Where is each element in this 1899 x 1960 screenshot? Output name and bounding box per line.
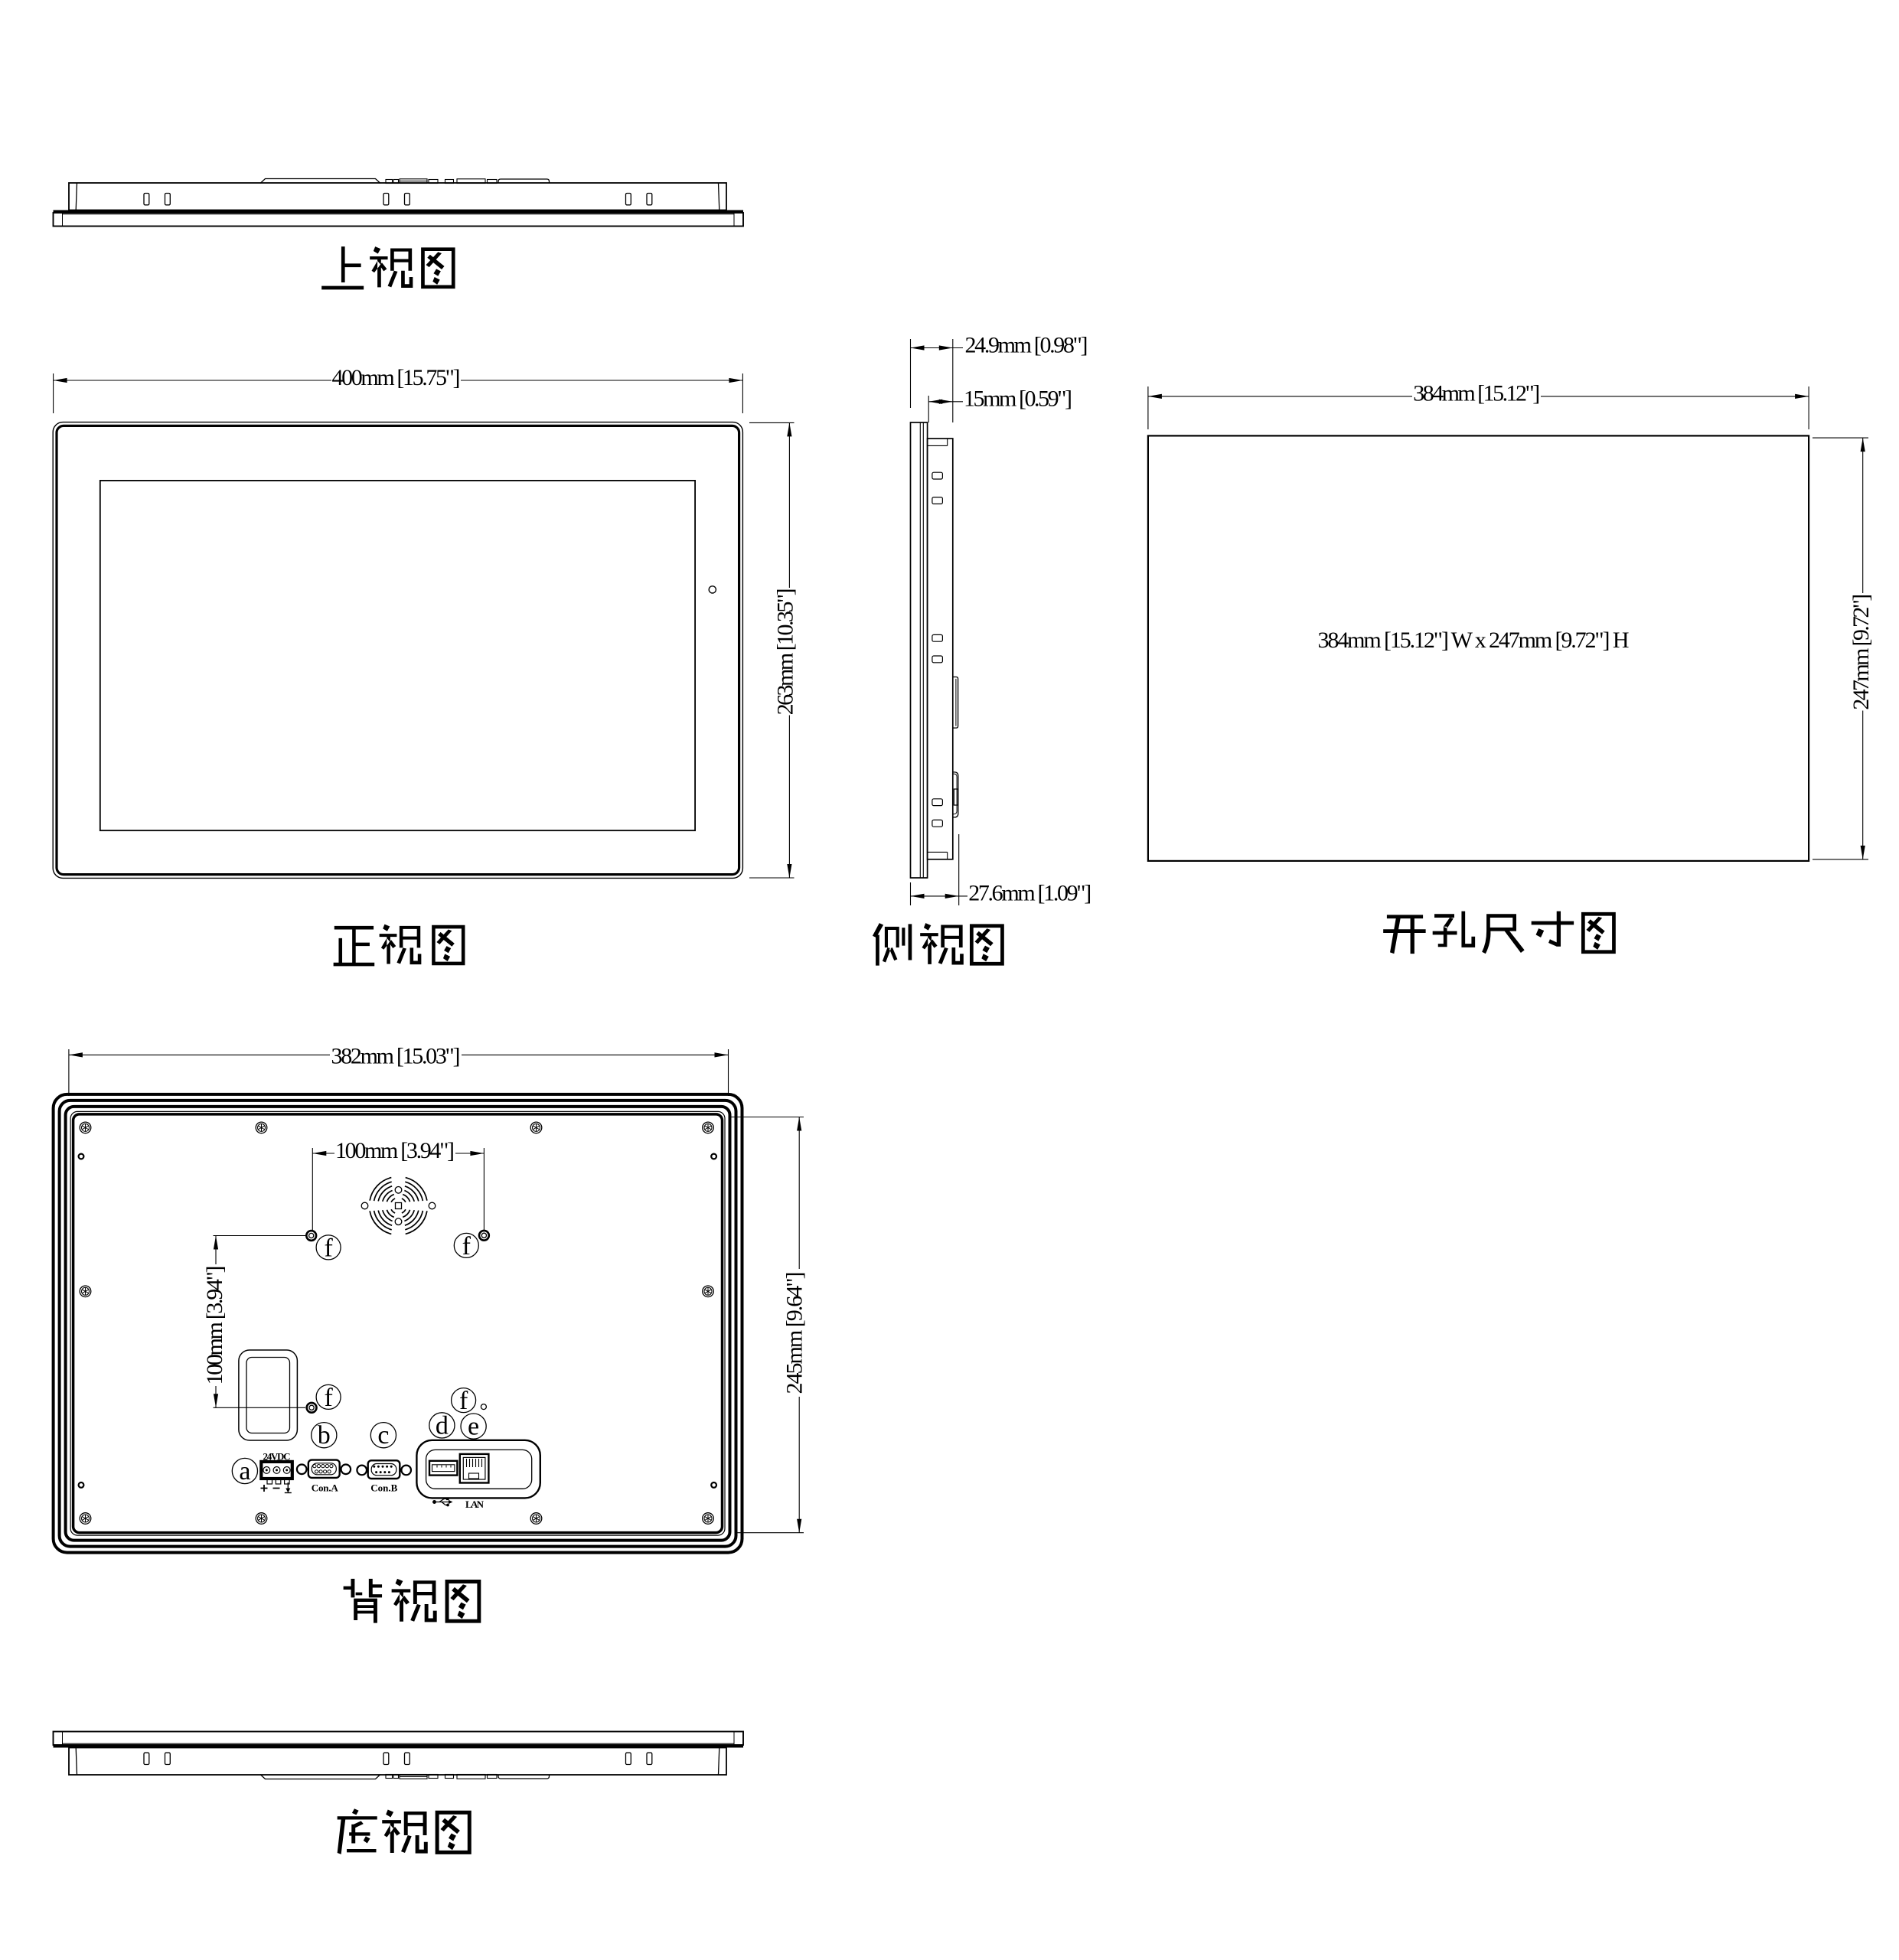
svg-text:Con.A: Con.A — [312, 1482, 339, 1494]
svg-text:400mm [15.75"]: 400mm [15.75"] — [332, 365, 461, 390]
svg-text:100mm [3.94"]: 100mm [3.94"] — [335, 1138, 455, 1163]
svg-text:384mm [15.12"] W x 247mm [9.72: 384mm [15.12"] W x 247mm [9.72"] H — [1318, 628, 1630, 653]
svg-text:24.9mm [0.98"]: 24.9mm [0.98"] — [965, 333, 1088, 358]
svg-text:382mm [15.03"]: 382mm [15.03"] — [331, 1044, 461, 1069]
svg-text:c: c — [377, 1421, 389, 1450]
svg-text:245mm [9.64"]: 245mm [9.64"] — [781, 1272, 807, 1394]
svg-text:384mm [15.12"]: 384mm [15.12"] — [1413, 381, 1540, 406]
svg-text:a: a — [239, 1457, 250, 1485]
svg-text:15mm [0.59"]: 15mm [0.59"] — [964, 386, 1072, 412]
svg-text:263mm [10.35"]: 263mm [10.35"] — [773, 588, 798, 715]
svg-text:b: b — [318, 1421, 331, 1450]
svg-text:100mm [3.94"]: 100mm [3.94"] — [202, 1266, 227, 1385]
svg-text:e: e — [468, 1413, 479, 1441]
svg-text:27.6mm [1.09"]: 27.6mm [1.09"] — [968, 881, 1091, 906]
svg-text:247mm [9.72"]: 247mm [9.72"] — [1848, 594, 1874, 710]
svg-text:d: d — [436, 1411, 449, 1440]
svg-text:LAN: LAN — [465, 1499, 485, 1510]
svg-text:Con.B: Con.B — [370, 1482, 397, 1494]
